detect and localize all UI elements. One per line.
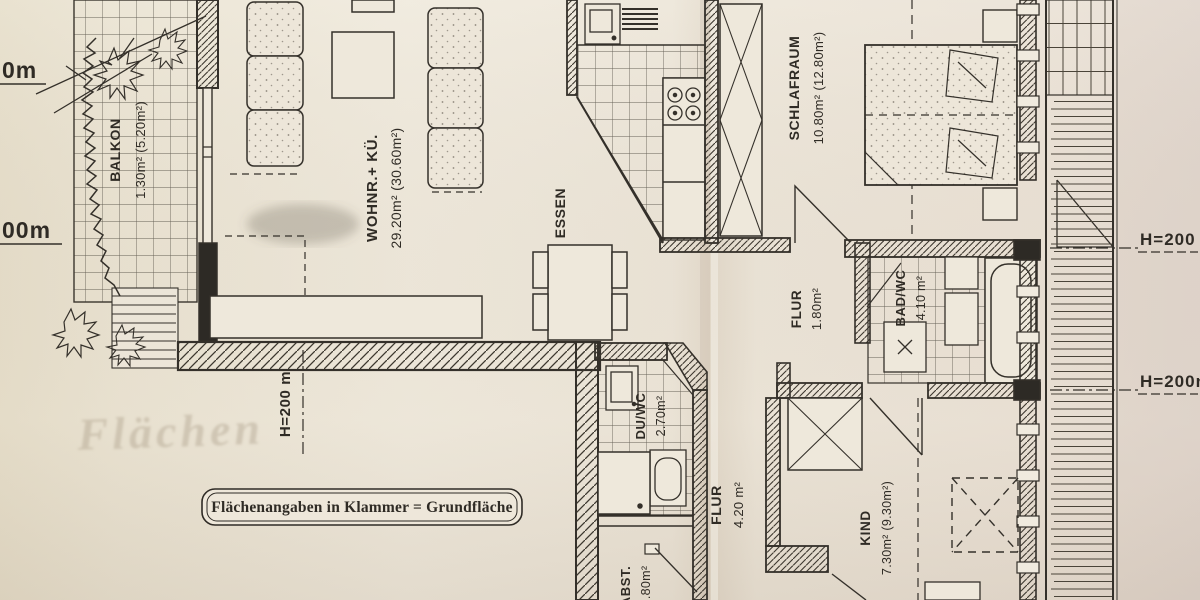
label-flur-gross: FLUR — [708, 485, 724, 525]
legend-note: Flächenangaben in Klammer = Grundfläche — [211, 499, 512, 516]
kind-desk — [925, 582, 980, 600]
label-height-right-top: H=200 — [1140, 230, 1196, 249]
wall-kitchen-west — [567, 0, 577, 95]
ink-bleed-mark — [247, 204, 359, 244]
balcony-window — [203, 88, 212, 243]
shower — [598, 452, 650, 514]
label-bad-wc-area: 4.10 m² — [914, 276, 928, 320]
wall-living-south — [178, 342, 600, 370]
wall-kind-west — [766, 398, 780, 546]
paper-right-margin — [1118, 0, 1200, 600]
double-bed — [865, 45, 1017, 185]
wall-duwc-east — [693, 390, 707, 600]
chair — [533, 294, 548, 330]
wall-duwc-north — [595, 343, 667, 360]
wall-bad-south-a — [777, 383, 862, 398]
bath-sink — [884, 322, 926, 372]
balcony-deck-slats — [112, 288, 178, 368]
coffee-table — [332, 32, 394, 98]
wall-kitchen-east — [705, 0, 718, 243]
floor-plan-scan: Flächen — [0, 0, 1200, 600]
chair — [612, 252, 627, 288]
label-balkon-area: 1.30m² (5.20m²) — [133, 101, 148, 199]
sofa-right — [428, 8, 483, 188]
label-flur-klein-area: 1.80m² — [809, 288, 824, 331]
watermark-text: Flächen — [76, 403, 265, 461]
floor-plan-drawing: Flächen — [0, 0, 1200, 600]
label-essen: ESSEN — [552, 188, 568, 238]
legend-box: Flächenangaben in Klammer = Grundfläche — [202, 489, 522, 525]
label-height-right-bottom: H=200m — [1140, 372, 1200, 391]
label-schlafraum: SCHLAFRAUM — [786, 36, 802, 141]
label-height-left-top: 0m — [2, 57, 37, 83]
kind-wardrobe — [788, 398, 862, 470]
chair — [612, 294, 627, 330]
label-wohnkueche: WOHNR.+ KÜ. — [364, 134, 381, 242]
label-kind-area: 7.30m² (9.30m²) — [880, 481, 894, 575]
wc-cistern — [945, 257, 978, 289]
dining-table — [548, 245, 612, 340]
roof-deck — [1046, 0, 1117, 600]
sofa-left — [247, 2, 303, 166]
label-kind: KIND — [858, 510, 873, 545]
sideboard — [210, 296, 482, 338]
wall-post — [1014, 240, 1040, 260]
label-height-left-mid: 00m — [2, 217, 51, 243]
duwc-toilet — [650, 450, 686, 506]
label-balkon: BALKON — [107, 118, 123, 181]
kitchen-counter — [663, 78, 705, 240]
label-abst: ABST. — [618, 566, 633, 600]
label-schlafraum-area: 10.80m² (12.80m²) — [811, 32, 826, 145]
nightstand — [983, 10, 1017, 42]
label-flur-klein: FLUR — [789, 290, 804, 328]
wc-bowl — [945, 293, 978, 345]
label-flur-gross-area: 4.20 m² — [731, 482, 746, 529]
label-bad-wc: BAD/WC — [893, 269, 908, 326]
kitchen-sink — [585, 4, 620, 44]
nightstand — [983, 188, 1017, 220]
wall-spine-west — [576, 342, 598, 600]
wall-kind-step — [766, 546, 828, 572]
abst-door-frame — [645, 544, 659, 554]
wall-kitchen-south — [660, 238, 790, 252]
chair — [533, 252, 548, 288]
wall-post — [1014, 380, 1040, 400]
label-du-wc-area: 2.70m² — [654, 396, 668, 437]
shelf-top-edge — [352, 0, 394, 12]
label-abst-area: 1.80m² — [639, 566, 653, 600]
label-height-center: H=200 m — [277, 371, 294, 437]
label-du-wc: DU/WC — [633, 392, 648, 439]
wardrobe — [720, 4, 762, 236]
wall-bad-north — [845, 240, 1040, 257]
label-wohnkueche-area: 29.20m² (30.60m²) — [388, 127, 404, 248]
